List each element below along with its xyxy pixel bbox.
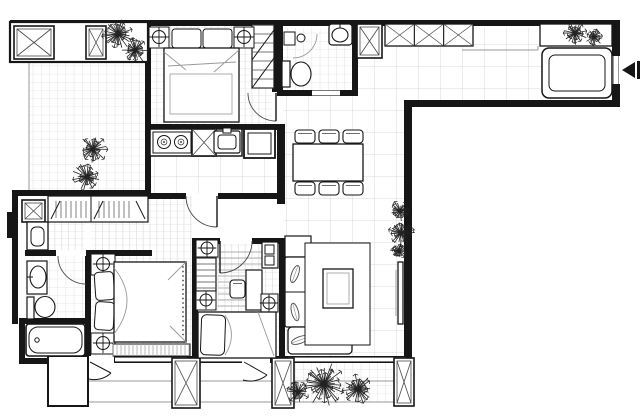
wall-tub-left (19, 318, 25, 364)
shower-mixer (284, 32, 295, 45)
wall-kitchen-dining (277, 124, 285, 204)
plant-tip (97, 173, 98, 176)
bed-master-trim (182, 302, 184, 304)
dining-table (293, 144, 363, 181)
desk (246, 270, 262, 310)
pillow-b1-right (203, 29, 232, 48)
plant-core (133, 48, 137, 52)
dining-chair (343, 130, 363, 143)
plant-core (573, 31, 577, 35)
b2-shelf-box-1 (265, 245, 274, 254)
bed-b1-duvet (170, 74, 232, 114)
bed-master-trim (182, 329, 184, 331)
pillow-master-2 (94, 301, 115, 330)
bed-master-trim (182, 293, 184, 295)
pillow-master-1 (94, 271, 115, 300)
wall-bedroom2-right (279, 238, 285, 362)
plant-core (115, 31, 120, 36)
wall-left (12, 190, 18, 324)
plant-core (399, 231, 403, 235)
bath-sink-bowl (332, 28, 348, 42)
bed-master-trim (182, 266, 184, 268)
kitchen-sink-basin (218, 135, 236, 149)
plant-core (85, 175, 90, 180)
dining-chair (343, 182, 363, 195)
plant-core (398, 209, 401, 212)
entry-mat-inner (549, 55, 605, 91)
toilet-tank (282, 61, 290, 87)
bed-master-trim (182, 298, 184, 300)
bed-master-trim (182, 289, 184, 291)
toilet-bowl (291, 62, 311, 86)
dining-chair (319, 130, 339, 143)
bed-master-trim (182, 316, 184, 318)
pillow-b1-left (172, 29, 201, 48)
master-foot-bench (113, 344, 190, 356)
floor-nook (48, 222, 85, 250)
wall-left-step (7, 212, 12, 238)
pillow-b2 (200, 315, 225, 356)
plant-core (355, 386, 360, 391)
plant-core (593, 36, 596, 39)
bed-master-trim (182, 334, 184, 336)
dining-chair (295, 130, 315, 143)
dining-chair (295, 182, 315, 195)
floor-plan-canvas (0, 0, 640, 418)
floor-plan (0, 0, 640, 418)
plant-core (398, 250, 401, 253)
wardrobe-bedroom2 (196, 258, 216, 291)
wall-bath2-top-a (25, 250, 56, 256)
wall-entry-right-a (612, 20, 620, 56)
wall-wing-bottom (404, 100, 620, 107)
burner-1-dot (163, 141, 165, 143)
wall-kitchen-bottom-b (218, 193, 285, 199)
bed-master-trim (182, 320, 184, 322)
bed-master-trim (182, 275, 184, 277)
wall-kitchen-bottom-a (148, 193, 186, 199)
bathtub-inner (29, 327, 82, 353)
burner-2-dot (180, 141, 182, 143)
fridge-inner (248, 133, 271, 154)
bed-master-trim (182, 284, 184, 286)
b2-shelf-box-2 (265, 256, 274, 265)
bed-master-trim (182, 325, 184, 327)
bed-master (114, 262, 186, 342)
toilet2-tank (27, 297, 34, 319)
coffee-table-inner (327, 273, 349, 304)
bed-master-trim (182, 307, 184, 309)
laundry-door (31, 227, 44, 246)
balcony-pier (48, 356, 88, 406)
plant-core (296, 390, 300, 394)
bed-master-trim (182, 311, 184, 313)
bed-master-trim (182, 280, 184, 282)
desk-chair (230, 280, 245, 298)
hall-closet (48, 196, 148, 222)
plant-core (91, 147, 96, 152)
tv (398, 262, 403, 324)
kitchen-faucet (223, 128, 231, 133)
dining-chair (319, 182, 339, 195)
plant-core (321, 381, 328, 388)
toilet2-bowl (35, 297, 55, 318)
bed-master-trim (182, 271, 184, 273)
wall-hall-top (12, 190, 148, 196)
floor-plan-page (0, 0, 640, 418)
